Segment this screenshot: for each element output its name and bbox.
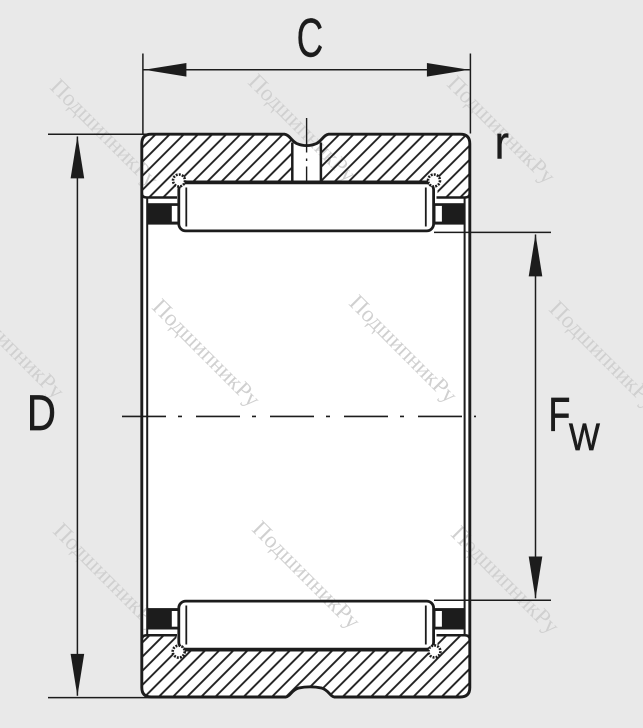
svg-text:W: W [569,416,600,459]
svg-text:C: C [297,7,324,68]
svg-text:F: F [549,388,571,441]
